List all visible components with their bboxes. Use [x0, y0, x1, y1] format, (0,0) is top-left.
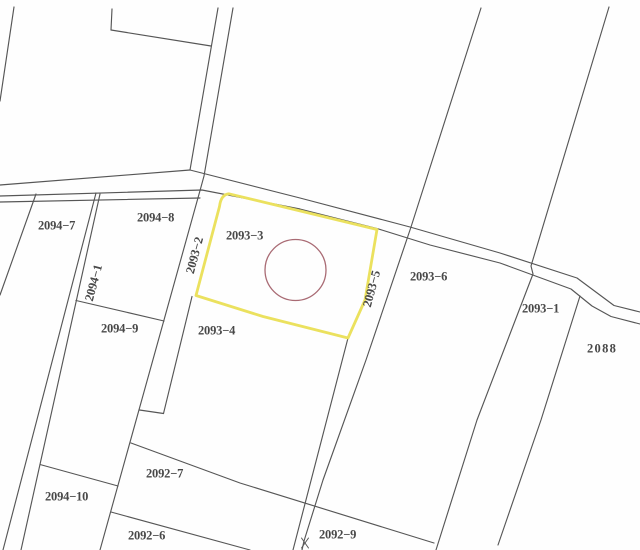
svg-text:2092−9: 2092−9 [319, 528, 356, 542]
svg-text:2093−3: 2093−3 [226, 229, 263, 243]
svg-text:2088: 2088 [587, 342, 617, 356]
svg-text:2093−5: 2093−5 [360, 269, 383, 309]
svg-text:2094−1: 2094−1 [82, 263, 105, 303]
svg-text:2094−7: 2094−7 [38, 219, 75, 233]
svg-text:2094−10: 2094−10 [45, 490, 88, 504]
svg-text:2093−1: 2093−1 [522, 302, 559, 316]
svg-text:2094−8: 2094−8 [137, 211, 174, 225]
svg-text:2093−4: 2093−4 [198, 324, 236, 338]
svg-text:2092−6: 2092−6 [128, 529, 165, 543]
svg-text:2094−9: 2094−9 [101, 322, 138, 336]
svg-text:2092−7: 2092−7 [146, 467, 183, 481]
svg-text:2093−6: 2093−6 [410, 270, 447, 284]
